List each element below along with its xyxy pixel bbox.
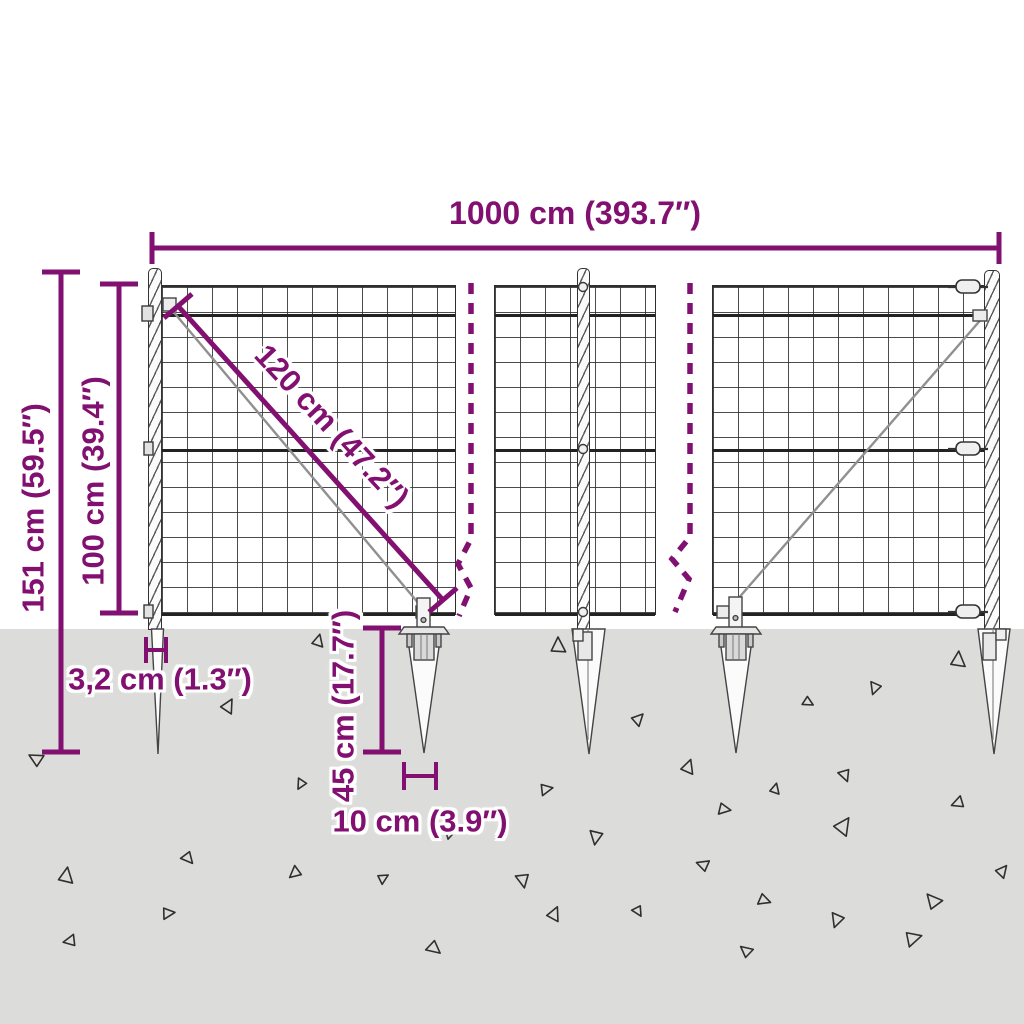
diagram-overlay (0, 0, 1024, 1024)
brace-fittings (163, 298, 987, 618)
break-marks (458, 283, 690, 616)
turnbuckles (948, 280, 988, 618)
dim-label-spike-depth: 45 cm (17.7″) (328, 610, 359, 802)
dim-label-post-width: 3,2 cm (1.3″) (68, 664, 252, 695)
spike-anchor-2 (711, 627, 761, 753)
fence-dimension-diagram: 1000 cm (393.7″) 151 cm (59.5″) 100 cm (… (0, 0, 1024, 1024)
spike-anchor-1 (399, 627, 449, 753)
dimension-lines (42, 232, 999, 790)
dim-label-mesh-height: 100 cm (39.4″) (78, 376, 109, 586)
dim-label-spike-top-width: 10 cm (3.9″) (332, 806, 507, 837)
spike-cone-right (978, 629, 1010, 754)
dim-label-total-width: 1000 cm (393.7″) (449, 197, 701, 229)
dim-label-total-height: 151 cm (59.5″) (18, 403, 49, 613)
brace-wires (166, 303, 984, 617)
spike-cone-middle (572, 629, 605, 754)
ground-spikes (152, 627, 1011, 754)
